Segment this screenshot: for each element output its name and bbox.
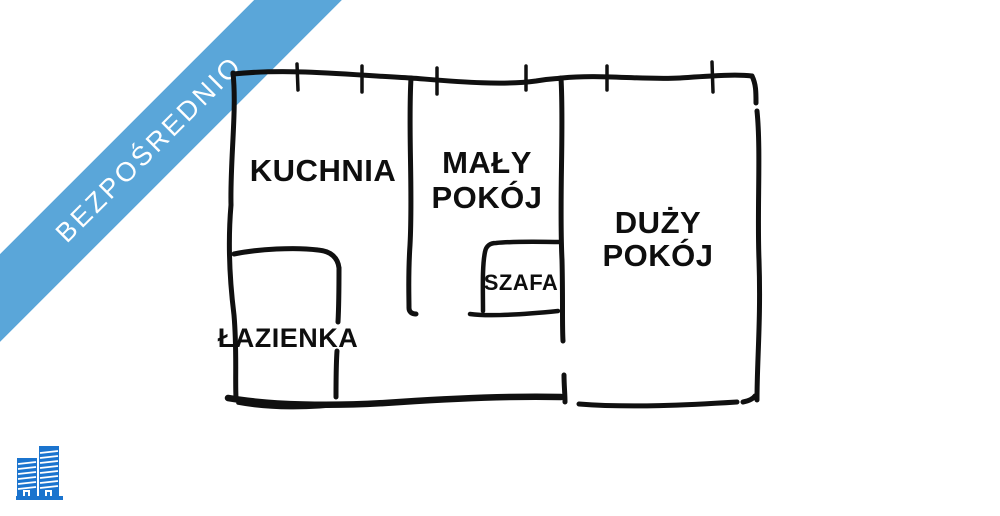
- room-label-szafa: SZAFA: [484, 270, 559, 295]
- wall-rooms-divider-upper: [561, 78, 563, 341]
- floor-plan: KUCHNIA MAŁY POKÓJ DUŻY POKÓJ SZAFA ŁAZI…: [0, 0, 1000, 516]
- room-label-maly-line2: POKÓJ: [431, 179, 542, 215]
- room-label-duzy-line2: POKÓJ: [602, 237, 713, 273]
- wall-right-upper: [752, 76, 756, 103]
- room-label-lazienka: ŁAZIENKA: [218, 323, 359, 353]
- buildings-icon: [16, 444, 64, 502]
- room-label-maly-line1: MAŁY: [442, 145, 532, 180]
- wall-bottom-left: [228, 397, 561, 405]
- wall-bathroom-right-upper: [338, 268, 339, 322]
- wall-top: [233, 72, 752, 83]
- wall-bottom-right: [579, 396, 755, 406]
- listing-image: BEZPOŚREDNIO KUCHNIA MAŁY POKÓJ DUŻY POK…: [0, 0, 1000, 516]
- room-label-duzy-line1: DUŻY: [615, 205, 701, 240]
- room-label-kuchnia: KUCHNIA: [250, 153, 396, 188]
- wall-rooms-divider-lower: [564, 375, 565, 402]
- wall-bathroom-top: [234, 249, 339, 268]
- wall-right-lower: [757, 111, 760, 400]
- wall-bathroom-right-lower: [336, 351, 337, 397]
- wall-kitchen-divider: [409, 78, 416, 314]
